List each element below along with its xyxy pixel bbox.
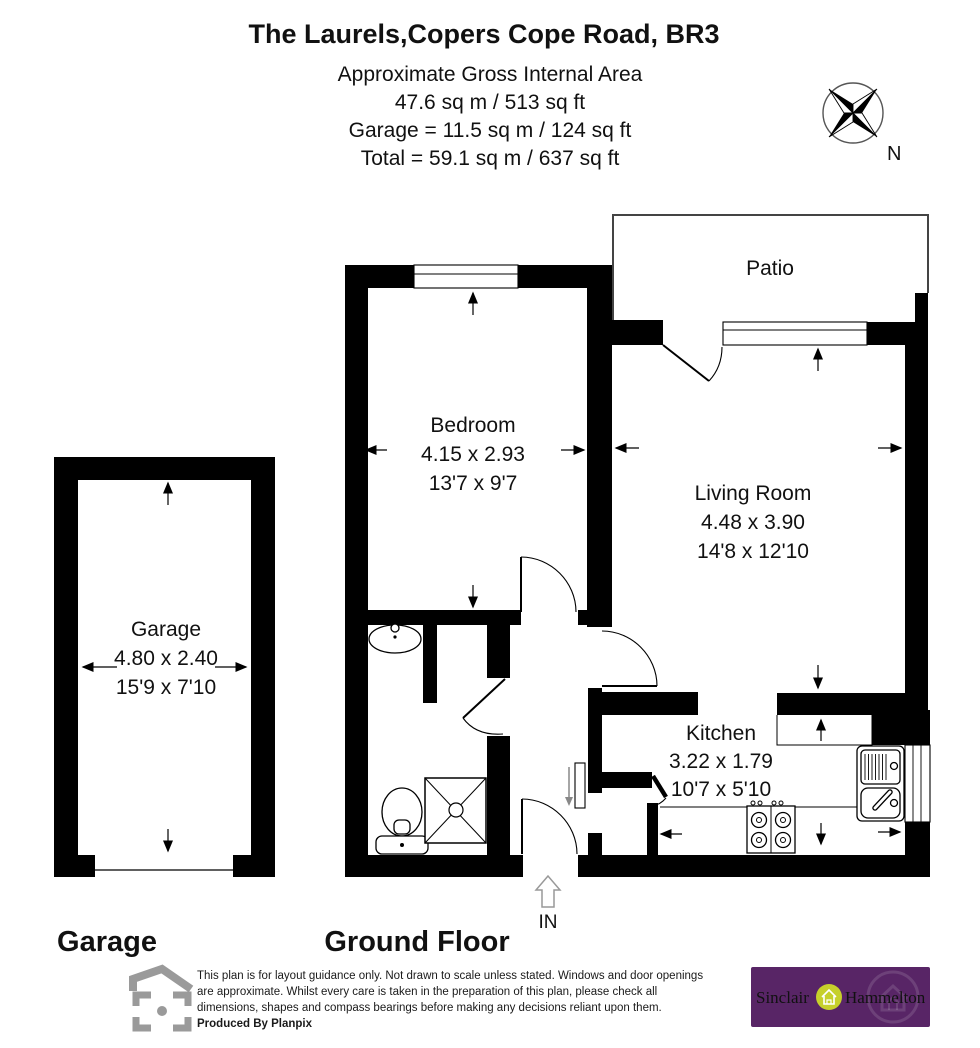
disclaimer-line: are approximate. Whilst every care is ta… xyxy=(197,984,757,1000)
patio-door xyxy=(663,345,722,381)
bathroom-door xyxy=(463,679,505,734)
entrance: IN xyxy=(536,876,560,933)
floorplan-canvas: The Laurels,Copers Cope Road, BR3 Approx… xyxy=(0,0,980,1048)
kitchen-door xyxy=(652,776,666,805)
agency-name-part2: Hammelton xyxy=(845,988,926,1007)
floor-title-garage: Garage xyxy=(57,926,157,958)
bedroom-label: Bedroom xyxy=(430,414,515,437)
toilet-icon xyxy=(376,788,428,854)
room-labels: Patio Bedroom 4.15 x 2.93 13'7 x 9'7 Liv… xyxy=(114,257,811,801)
garage-size-imperial: 15'9 x 7'10 xyxy=(116,676,216,699)
header-area-line1: 47.6 sq m / 513 sq ft xyxy=(395,91,585,114)
header-area-line2: Garage = 11.5 sq m / 124 sq ft xyxy=(349,119,632,142)
agency-logo: Sinclair Hammelton xyxy=(751,967,930,1027)
kitchen-worktop xyxy=(777,715,872,745)
bedroom-size-metric: 4.15 x 2.93 xyxy=(421,443,525,466)
kitchen-label: Kitchen xyxy=(686,722,756,745)
footer-disclaimer: This plan is for layout guidance only. N… xyxy=(197,968,757,1032)
front-door xyxy=(522,799,577,854)
north-label: N xyxy=(887,143,901,165)
compass-rose-icon: N xyxy=(823,83,901,165)
garage-size-metric: 4.80 x 2.40 xyxy=(114,647,218,670)
kitchen-window xyxy=(905,745,930,822)
floor-title-ground: Ground Floor xyxy=(324,926,509,958)
radiator xyxy=(565,763,585,808)
basin-icon xyxy=(369,624,421,653)
living-room-window xyxy=(723,322,867,345)
floorplan-page: The Laurels,Copers Cope Road, BR3 Approx… xyxy=(0,0,980,1048)
header: The Laurels,Copers Cope Road, BR3 Approx… xyxy=(248,19,719,170)
disclaimer-line: dimensions, shapes and compass bearings … xyxy=(197,1000,757,1016)
kitchen-size-imperial: 10'7 x 5'10 xyxy=(671,778,771,801)
produced-by: Produced By Planpix xyxy=(197,1016,757,1032)
living-room-door xyxy=(602,631,657,686)
agency-house-circle-icon xyxy=(816,984,842,1010)
living-room-size-metric: 4.48 x 3.90 xyxy=(701,511,805,534)
entrance-label: IN xyxy=(539,912,558,933)
bedroom-size-imperial: 13'7 x 9'7 xyxy=(429,472,518,495)
header-subtitle: Approximate Gross Internal Area xyxy=(338,63,643,86)
header-area-line3: Total = 59.1 sq m / 637 sq ft xyxy=(361,147,620,170)
planpix-logo-icon xyxy=(133,969,191,1028)
bedroom-window xyxy=(414,265,518,288)
bedroom-door xyxy=(521,557,576,612)
disclaimer-line: This plan is for layout guidance only. N… xyxy=(197,968,757,984)
agency-name-part1: Sinclair xyxy=(756,988,809,1007)
page-title: The Laurels,Copers Cope Road, BR3 xyxy=(248,19,719,49)
hob-icon xyxy=(747,801,795,853)
living-room-label: Living Room xyxy=(695,482,812,505)
kitchen-size-metric: 3.22 x 1.79 xyxy=(669,750,773,773)
shower-icon xyxy=(425,778,486,843)
garage-label: Garage xyxy=(131,618,201,641)
sink-icon xyxy=(857,746,904,821)
living-room-size-imperial: 14'8 x 12'10 xyxy=(697,540,809,563)
entrance-arrow-icon xyxy=(536,876,560,907)
patio-label: Patio xyxy=(746,257,794,280)
